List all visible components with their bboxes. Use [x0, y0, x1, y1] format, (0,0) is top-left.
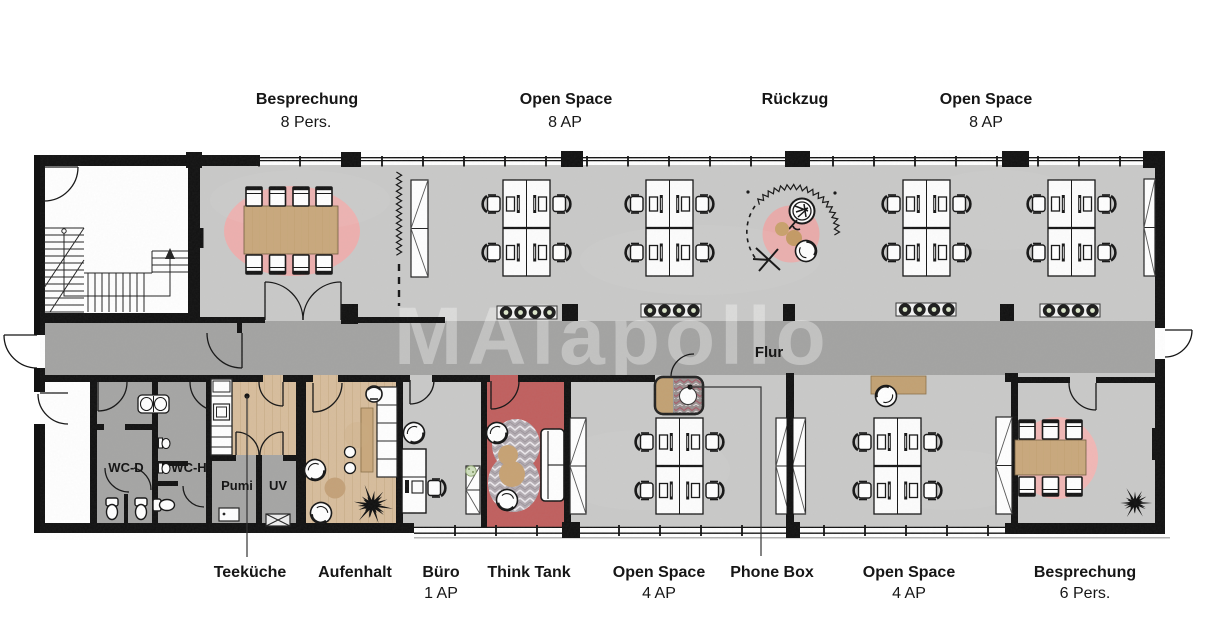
svg-text:WC-H: WC-H: [171, 460, 206, 475]
svg-text:Open Space: Open Space: [940, 91, 1033, 108]
svg-text:Aufenhalt: Aufenhalt: [318, 564, 392, 581]
svg-text:8 AP: 8 AP: [548, 114, 582, 131]
svg-text:1 AP: 1 AP: [424, 585, 458, 602]
svg-text:Open Space: Open Space: [520, 91, 613, 108]
svg-text:Besprechung: Besprechung: [256, 91, 358, 108]
svg-text:8 Pers.: 8 Pers.: [281, 114, 332, 131]
svg-text:Teeküche: Teeküche: [214, 564, 287, 581]
svg-text:Open Space: Open Space: [863, 564, 956, 581]
svg-text:Rückzug: Rückzug: [762, 91, 829, 108]
svg-text:WC-D: WC-D: [108, 460, 143, 475]
svg-text:Phone Box: Phone Box: [730, 564, 814, 581]
svg-text:Flur: Flur: [755, 344, 783, 361]
svg-text:Pumi: Pumi: [221, 478, 253, 493]
svg-text:6 Pers.: 6 Pers.: [1060, 585, 1111, 602]
svg-text:Think Tank: Think Tank: [487, 564, 570, 581]
svg-text:4 AP: 4 AP: [642, 585, 676, 602]
svg-text:Büro: Büro: [422, 564, 460, 581]
svg-text:4 AP: 4 AP: [892, 585, 926, 602]
svg-text:UV: UV: [269, 478, 287, 493]
svg-text:Besprechung: Besprechung: [1034, 564, 1136, 581]
svg-text:Open Space: Open Space: [613, 564, 706, 581]
svg-text:8 AP: 8 AP: [969, 114, 1003, 131]
